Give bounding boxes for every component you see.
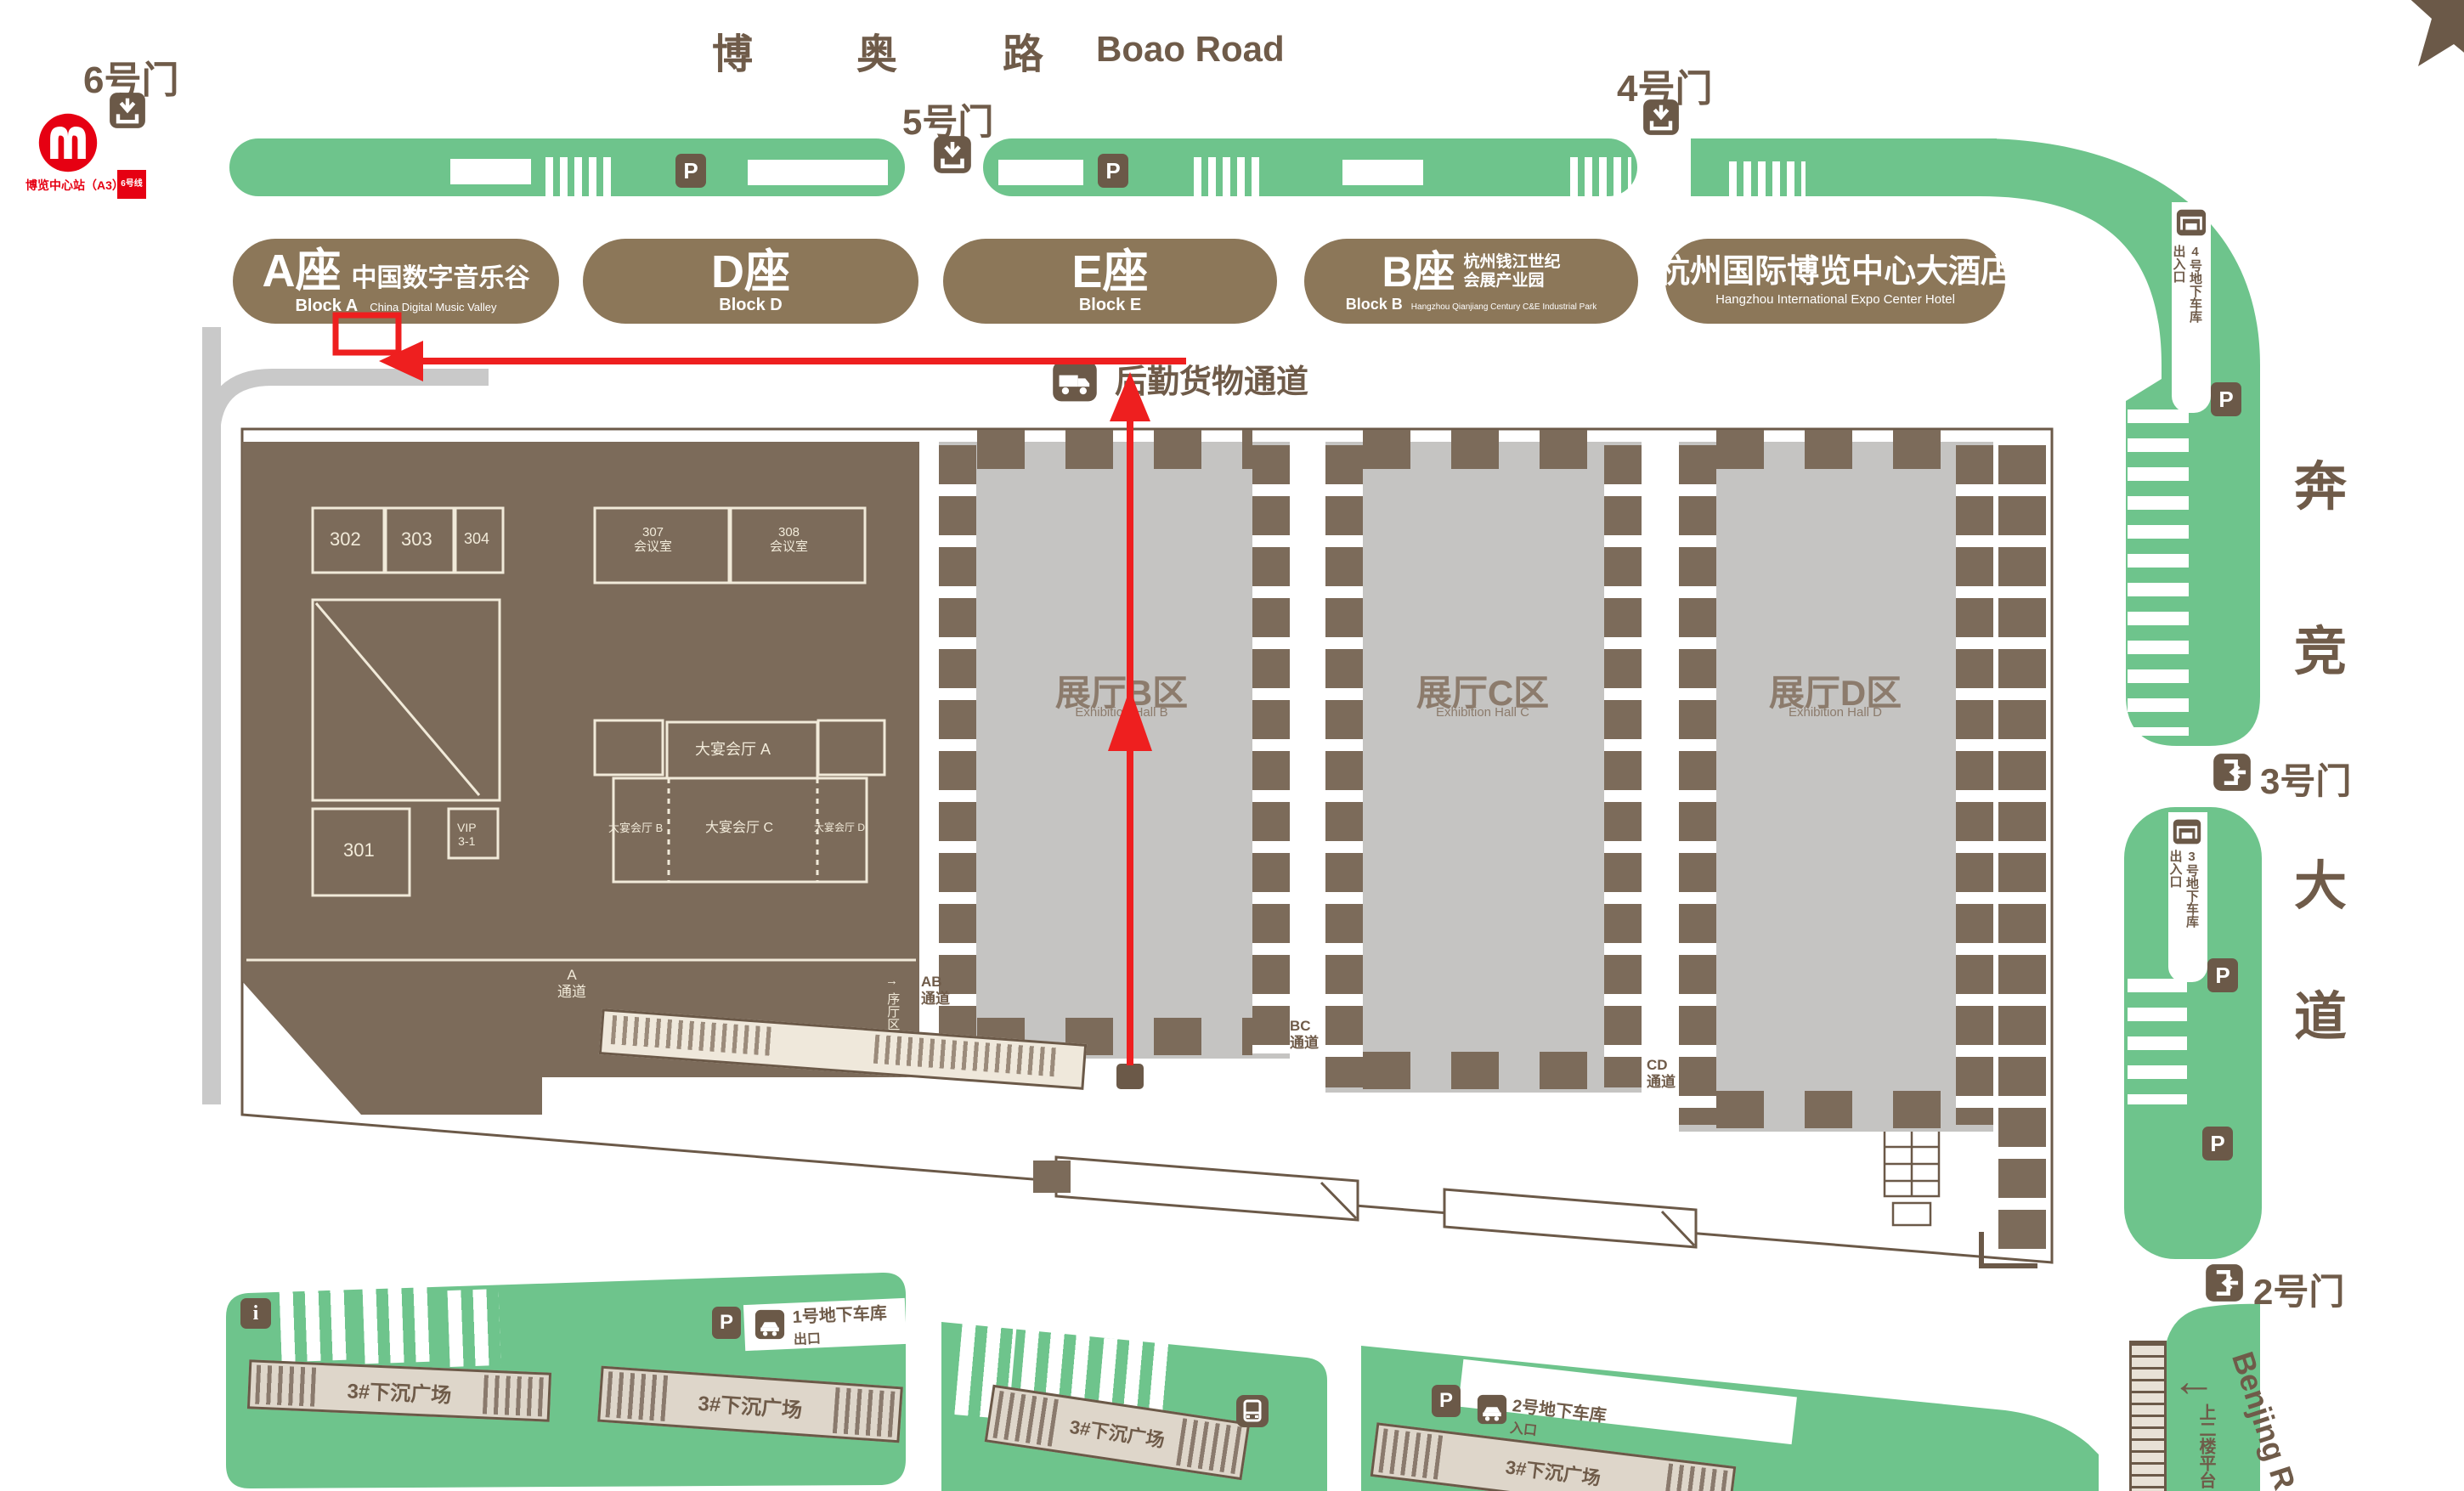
route-arrowheads xyxy=(379,341,1152,751)
route-lines xyxy=(336,315,1186,1065)
expo-center-map: P P 6号门 博 奥 路 Boao Road 5号门 4号门 博览中心站（A3… xyxy=(0,0,2464,1491)
destination-red-box xyxy=(336,315,398,353)
route-annotation-layer xyxy=(0,0,2464,1491)
channel-marker-icon xyxy=(1116,1064,1144,1089)
